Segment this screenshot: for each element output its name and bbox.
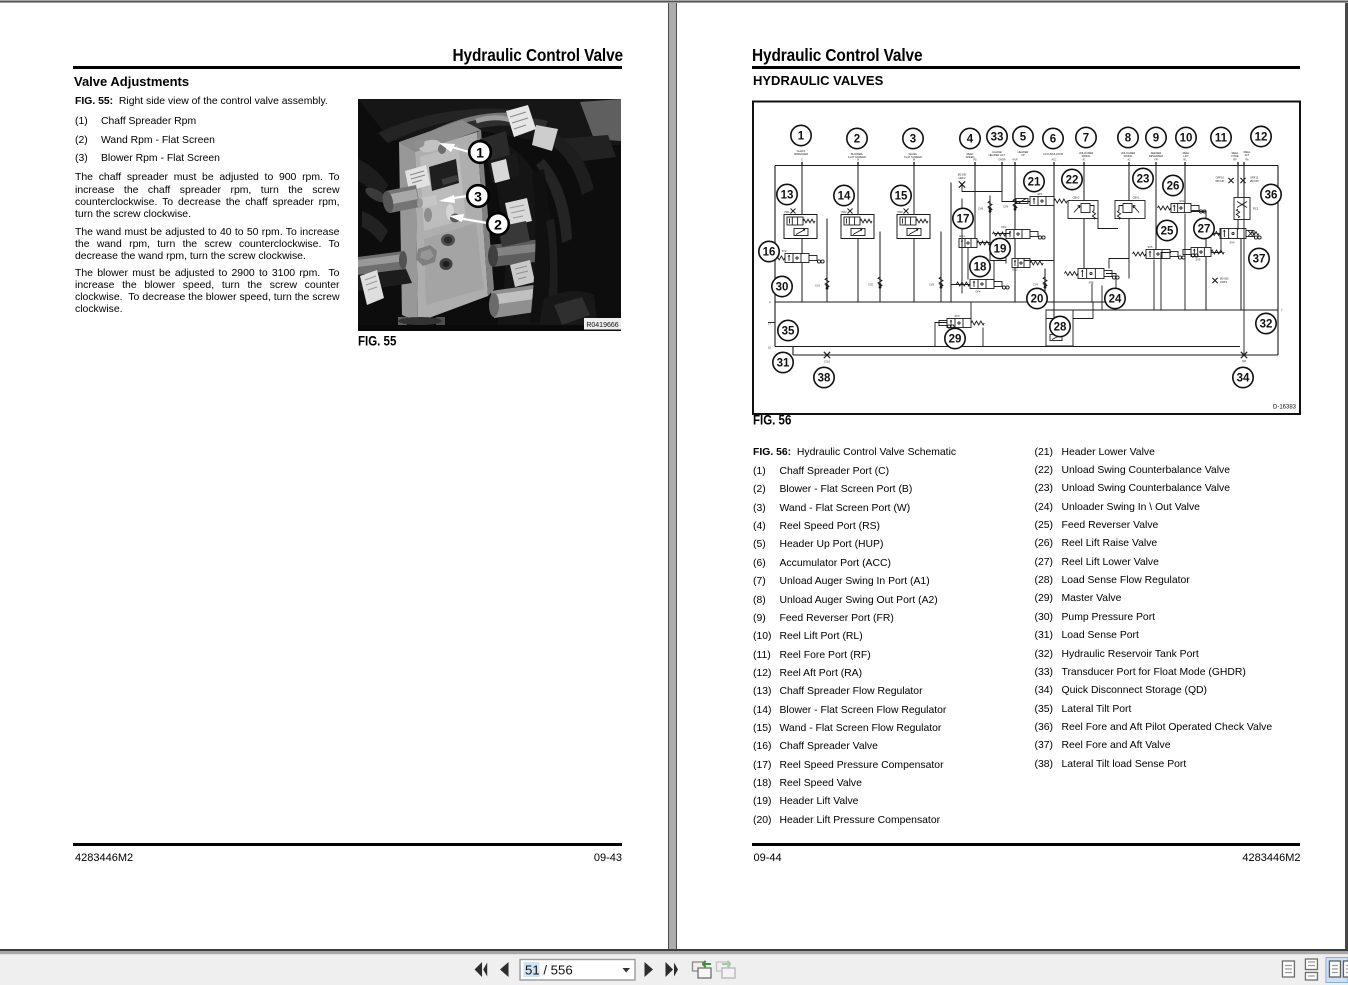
svg-text:ACC: ACC xyxy=(1051,158,1056,161)
svg-text:EC2: EC2 xyxy=(1012,267,1018,271)
svg-text:33: 33 xyxy=(991,131,1004,143)
svg-text:DF4: DF4 xyxy=(976,289,981,293)
svg-text:EP1: EP1 xyxy=(1038,192,1043,196)
svg-text:SV6: SV6 xyxy=(1196,257,1201,261)
svg-text:Ø0.040: Ø0.040 xyxy=(1250,179,1259,183)
svg-text:SWING: SWING xyxy=(1124,154,1133,158)
svg-text:35: 35 xyxy=(782,325,795,337)
svg-text:14: 14 xyxy=(838,190,851,202)
svg-text:CBV1: CBV1 xyxy=(1133,195,1140,199)
svg-text:Ø0.030: Ø0.030 xyxy=(958,172,967,176)
svg-text:REVERSER: REVERSER xyxy=(1149,154,1163,158)
svg-text:CV5: CV5 xyxy=(929,282,935,286)
svg-text:SWING: SWING xyxy=(1082,154,1091,158)
svg-text:19: 19 xyxy=(994,243,1007,255)
svg-text:LS: LS xyxy=(768,345,771,349)
svg-text:CV2: CV2 xyxy=(868,282,874,286)
svg-text:Ø0.055: Ø0.055 xyxy=(1220,276,1229,280)
svg-text:28: 28 xyxy=(1054,321,1067,333)
svg-text:1: 1 xyxy=(798,130,805,142)
svg-text:22: 22 xyxy=(1066,174,1079,186)
svg-text:24: 24 xyxy=(1109,293,1122,305)
svg-text:10: 10 xyxy=(1180,132,1193,144)
svg-text:PR2: PR2 xyxy=(841,210,847,214)
svg-text:LIFT: LIFT xyxy=(1183,154,1189,158)
svg-text:27: 27 xyxy=(1198,223,1211,235)
svg-text:SV1: SV1 xyxy=(1180,199,1185,203)
svg-text:34: 34 xyxy=(1237,372,1250,384)
svg-text:3: 3 xyxy=(910,133,916,145)
svg-text:FORE: FORE xyxy=(1231,154,1238,158)
svg-text:Ø0.040: Ø0.040 xyxy=(1215,179,1224,183)
svg-text:SV2: SV2 xyxy=(782,249,787,253)
svg-text:SPEED: SPEED xyxy=(966,155,975,159)
svg-text:R0419666: R0419666 xyxy=(586,322,618,329)
svg-text:31: 31 xyxy=(777,357,790,369)
svg-text:36: 36 xyxy=(1265,189,1278,201)
svg-text:RA: RA xyxy=(1245,158,1249,161)
svg-text:C: C xyxy=(801,158,803,161)
svg-text:CV6: CV6 xyxy=(978,206,984,210)
svg-text:8: 8 xyxy=(1125,132,1132,144)
svg-text:2: 2 xyxy=(494,216,502,232)
svg-text:ORF3: ORF3 xyxy=(1220,280,1227,284)
svg-text:CBV2: CBV2 xyxy=(1073,195,1080,199)
svg-text:37: 37 xyxy=(1253,253,1266,265)
svg-text:13: 13 xyxy=(781,189,794,201)
svg-text:32: 32 xyxy=(1260,318,1273,330)
svg-text:6: 6 xyxy=(1050,133,1056,145)
svg-text:FLAT SCREEN: FLAT SCREEN xyxy=(848,155,866,159)
svg-text:51 / 556: 51 / 556 xyxy=(525,963,573,978)
svg-text:4: 4 xyxy=(967,133,974,145)
svg-text:SV5: SV5 xyxy=(1148,245,1153,249)
svg-text:29: 29 xyxy=(949,333,962,345)
svg-text:SV3: SV3 xyxy=(955,314,960,318)
svg-text:QD: QD xyxy=(1242,359,1246,363)
svg-text:26: 26 xyxy=(1167,180,1180,192)
svg-text:HEADER LIFT: HEADER LIFT xyxy=(989,153,1006,157)
svg-text:PR8: PR8 xyxy=(897,210,903,214)
svg-text:ORF11: ORF11 xyxy=(1250,175,1259,179)
svg-text:LTLS: LTLS xyxy=(824,359,830,363)
svg-text:9: 9 xyxy=(1153,132,1159,144)
svg-text:15: 15 xyxy=(895,190,908,202)
svg-text:23: 23 xyxy=(1137,173,1150,185)
svg-text:P: P xyxy=(769,300,771,304)
svg-text:21: 21 xyxy=(1028,176,1041,188)
svg-text:PR1: PR1 xyxy=(784,210,790,214)
svg-text:5: 5 xyxy=(1020,131,1027,143)
svg-text:17: 17 xyxy=(957,213,970,225)
svg-text:2: 2 xyxy=(854,133,860,145)
svg-text:CV4: CV4 xyxy=(1033,282,1039,286)
svg-text:D-16383: D-16383 xyxy=(1273,404,1297,410)
svg-text:CV1: CV1 xyxy=(815,283,821,287)
svg-text:25: 25 xyxy=(1161,225,1174,237)
svg-text:1: 1 xyxy=(476,144,484,160)
svg-text:30: 30 xyxy=(776,281,789,293)
svg-text:SP8: SP8 xyxy=(1089,280,1094,284)
svg-text:AFT: AFT xyxy=(1245,153,1250,157)
svg-text:16: 16 xyxy=(763,246,776,258)
svg-text:SPREADER: SPREADER xyxy=(794,152,808,156)
svg-text:ACCUMULATOR: ACCUMULATOR xyxy=(1043,152,1063,156)
svg-text:12: 12 xyxy=(1255,131,1268,143)
svg-text:ORF2: ORF2 xyxy=(959,176,966,180)
svg-text:HUP: HUP xyxy=(1012,158,1017,161)
svg-text:20: 20 xyxy=(1031,293,1044,305)
svg-text:18: 18 xyxy=(974,261,987,273)
svg-text:FR: FR xyxy=(1154,158,1157,161)
svg-text:FLAT SCREEN: FLAT SCREEN xyxy=(904,155,922,159)
svg-text:CV3: CV3 xyxy=(1003,204,1009,208)
svg-text:DF2: DF2 xyxy=(1002,225,1007,229)
svg-text:11: 11 xyxy=(1215,132,1228,144)
svg-text:SV4: SV4 xyxy=(1230,240,1235,244)
svg-text:38: 38 xyxy=(818,372,831,384)
svg-text:RF: RF xyxy=(1233,158,1237,161)
svg-text:3: 3 xyxy=(474,188,482,204)
svg-text:7: 7 xyxy=(1083,132,1089,144)
svg-text:ORF10: ORF10 xyxy=(1216,175,1225,179)
svg-text:GHDR: GHDR xyxy=(998,158,1005,161)
svg-text:RC1: RC1 xyxy=(1253,206,1259,210)
svg-text:UP: UP xyxy=(1021,153,1025,157)
